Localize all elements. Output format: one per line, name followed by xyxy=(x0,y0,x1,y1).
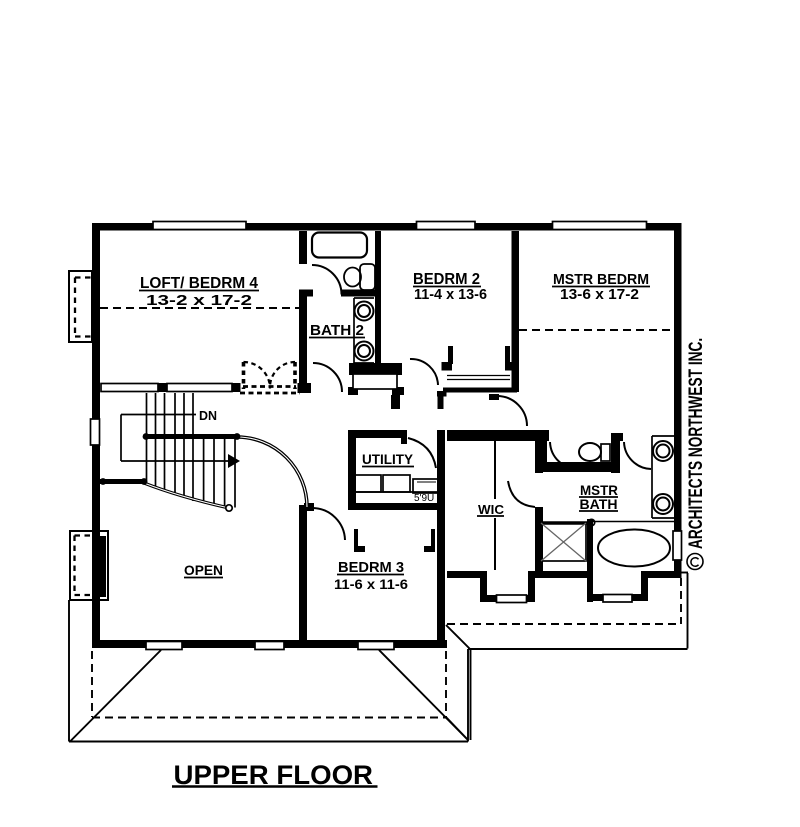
svg-text:OPEN: OPEN xyxy=(184,562,223,578)
svg-text:LOFT/ BEDRM 4: LOFT/ BEDRM 4 xyxy=(140,275,258,292)
svg-text:BATH 2: BATH 2 xyxy=(310,322,364,339)
svg-text:BEDRM 3: BEDRM 3 xyxy=(338,559,404,576)
svg-text:UTILITY: UTILITY xyxy=(362,451,414,467)
svg-text:13-6 x 17-2: 13-6 x 17-2 xyxy=(560,286,639,303)
svg-text:13-2 x 17-2: 13-2 x 17-2 xyxy=(146,292,252,309)
svg-text:WIC: WIC xyxy=(478,502,505,517)
svg-text:11-6 x 11-6: 11-6 x 11-6 xyxy=(334,576,408,592)
svg-text:11-4 x 13-6: 11-4 x 13-6 xyxy=(414,286,487,303)
svg-text:ARCHITECTS NORTHWEST INC.: ARCHITECTS NORTHWEST INC. xyxy=(685,338,707,549)
svg-text:5'9U: 5'9U xyxy=(414,493,434,504)
svg-text:BATH: BATH xyxy=(580,496,618,512)
svg-text:DN: DN xyxy=(199,408,217,423)
